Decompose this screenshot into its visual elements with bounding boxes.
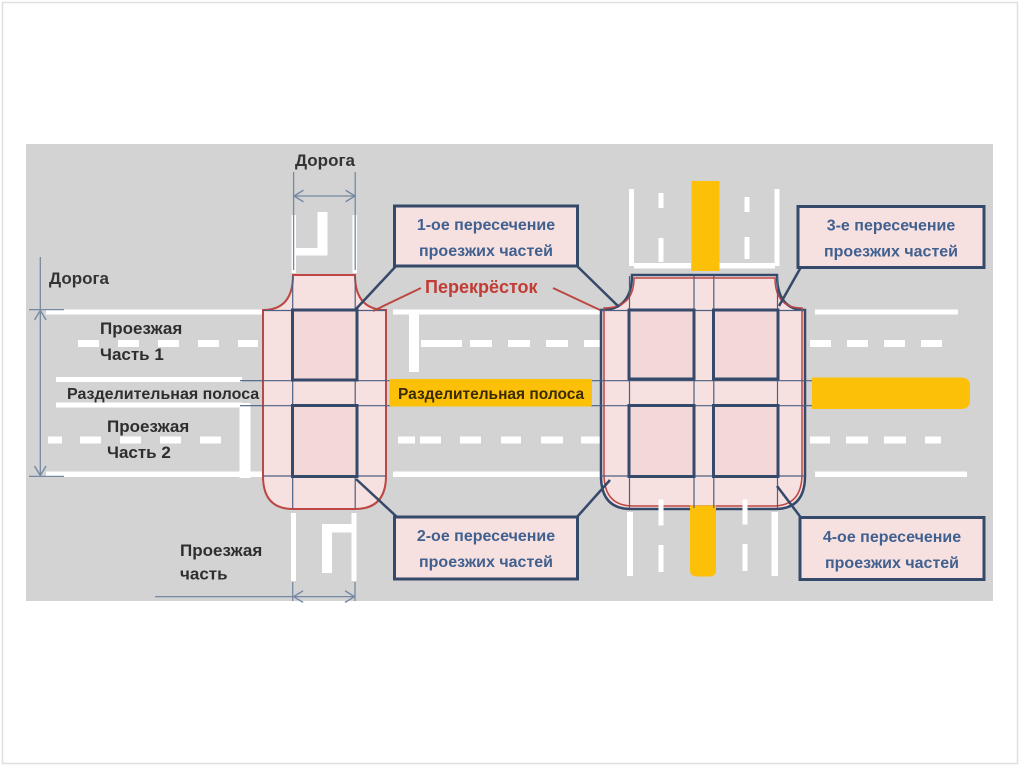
svg-text:Проезжая: Проезжая [180, 541, 262, 560]
svg-text:Проезжая: Проезжая [107, 417, 189, 436]
svg-text:Часть 1: Часть 1 [100, 345, 164, 364]
svg-text:1-ое пересечение: 1-ое пересечение [417, 217, 555, 234]
svg-text:Часть 2: Часть 2 [107, 443, 171, 462]
svg-text:Разделительная полоса: Разделительная полоса [67, 386, 259, 403]
svg-text:Дорога: Дорога [295, 151, 356, 170]
svg-text:Дорога: Дорога [49, 269, 110, 288]
svg-text:проезжих частей: проезжих частей [825, 555, 959, 572]
svg-text:4-ое пересечение: 4-ое пересечение [823, 529, 961, 546]
svg-text:3-е пересечение: 3-е пересечение [827, 218, 956, 235]
svg-text:проезжих частей: проезжих частей [824, 244, 958, 261]
svg-text:Проезжая: Проезжая [100, 319, 182, 338]
svg-text:Разделительная полоса: Разделительная полоса [398, 386, 585, 403]
svg-text:часть: часть [180, 565, 228, 584]
svg-text:2-ое пересечение: 2-ое пересечение [417, 528, 555, 545]
svg-text:проезжих частей: проезжих частей [419, 243, 553, 260]
svg-text:Перекрёсток: Перекрёсток [425, 277, 539, 297]
svg-text:проезжих частей: проезжих частей [419, 554, 553, 571]
